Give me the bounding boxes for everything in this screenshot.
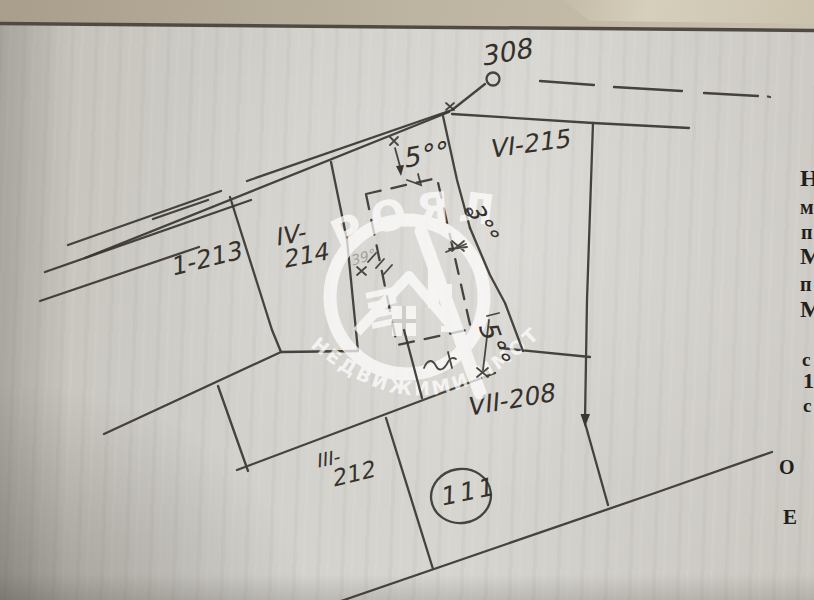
edge-letter: 1 <box>803 368 814 394</box>
parcel-label-i-213: 1-213 <box>166 236 246 282</box>
site-plan-drawing: 5°° 308 VI-215 1-213 IV- 214 VII-208 III… <box>0 0 814 600</box>
edge-letter: п <box>801 221 813 244</box>
edge-letter: м <box>800 196 814 219</box>
photo-of-cadastral-sketch: 5°° 308 VI-215 1-213 IV- 214 VII-208 III… <box>0 0 814 600</box>
edge-letter: Н <box>800 165 814 192</box>
edge-letter: п <box>800 273 812 296</box>
edge-letter: М <box>800 296 814 323</box>
dim-label-top: 5°° <box>400 135 451 174</box>
watermark: РОЯЛ НЕДВИЖИМИ ИМОТИ 39° <box>0 0 544 400</box>
road-number-label: 308 <box>478 32 537 72</box>
edge-letter: М <box>800 243 814 270</box>
circled-number: 111 <box>428 465 498 527</box>
page-edge-line <box>0 24 814 31</box>
boundary-arrowhead <box>581 414 591 427</box>
edge-letter: О <box>779 456 795 479</box>
road-node-circle <box>487 73 500 86</box>
edge-letter: с <box>803 395 811 417</box>
measurement-top: 5°° <box>390 103 454 185</box>
parcel-label-vi-215: VI-215 <box>487 124 573 164</box>
edge-letter: Е <box>783 505 797 530</box>
